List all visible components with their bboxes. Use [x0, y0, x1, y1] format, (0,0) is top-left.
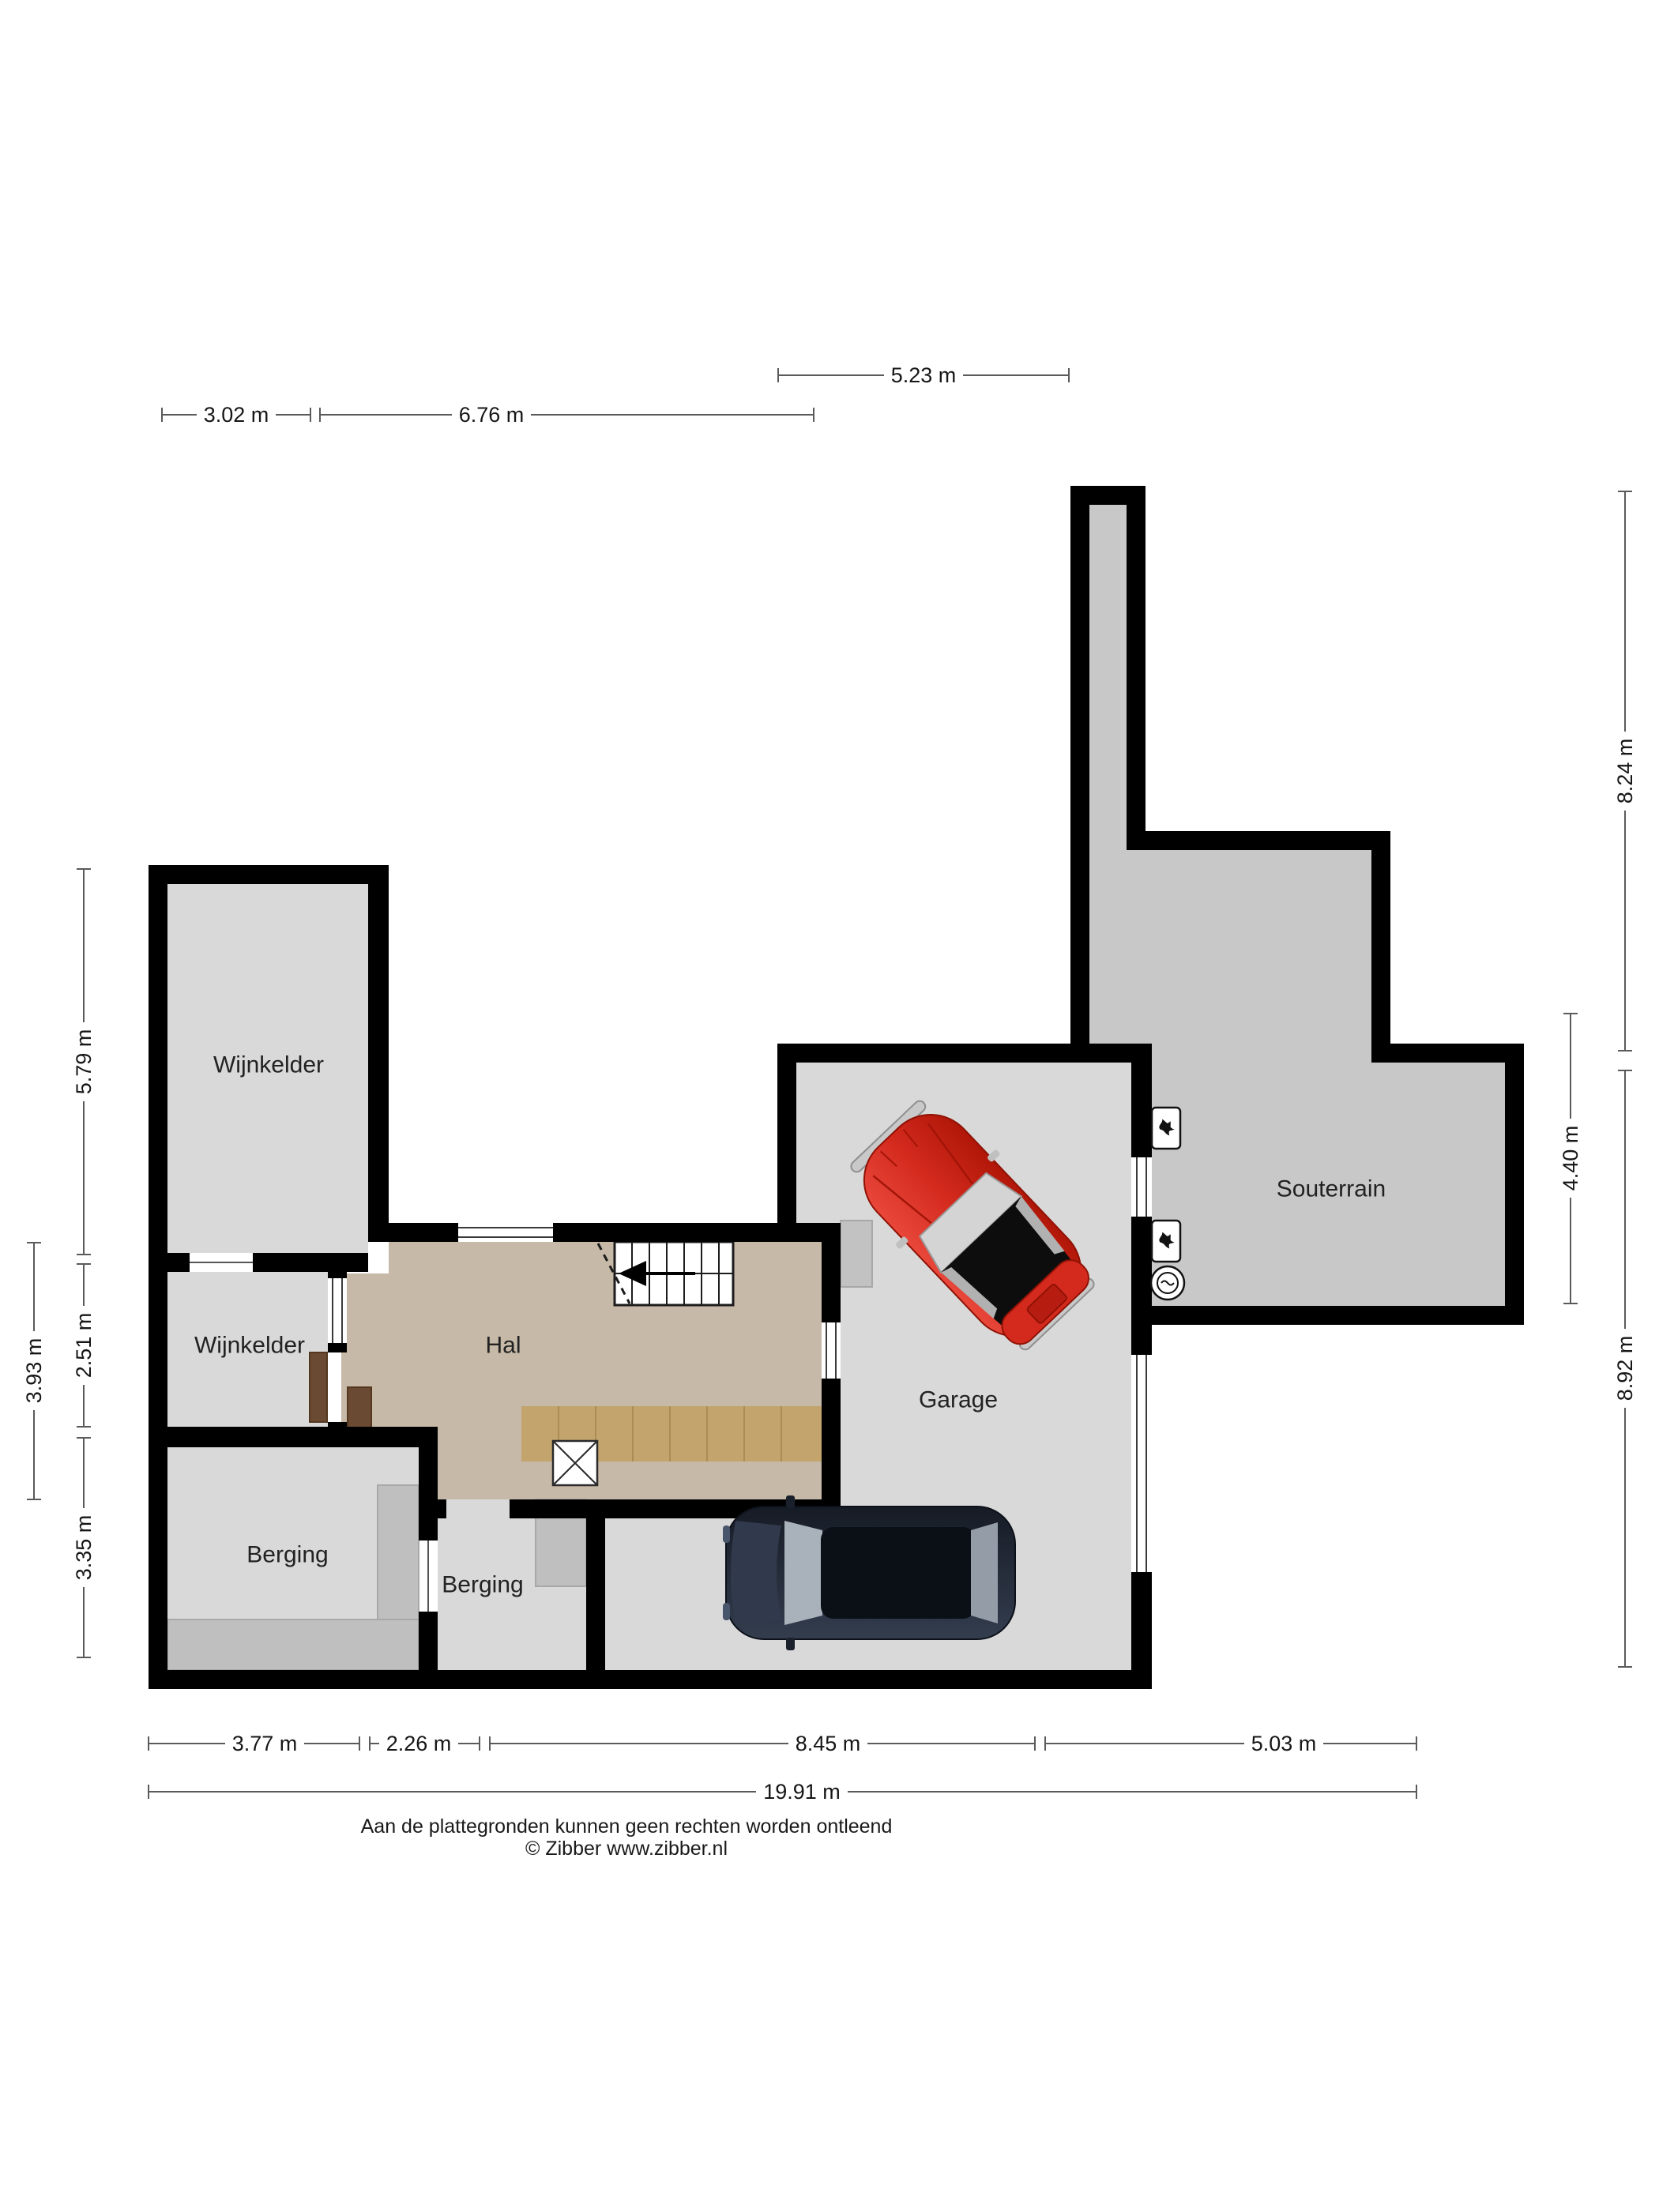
dim-left-berging: 3.35 m — [72, 1438, 96, 1657]
dim-bottom-berging-1: 3.77 m — [149, 1732, 359, 1755]
room-label-berging-2: Berging — [442, 1572, 523, 1598]
entry-strip-floor — [1089, 505, 1127, 850]
footer: Aan de plattegronden kunnen geen rechten… — [361, 1815, 893, 1860]
window-hal-garage — [822, 1322, 841, 1379]
svg-text:5.03 m: 5.03 m — [1251, 1732, 1317, 1755]
svg-text:3.35 m: 3.35 m — [72, 1515, 96, 1581]
svg-text:2.51 m: 2.51 m — [72, 1313, 96, 1379]
technical-block — [841, 1221, 872, 1287]
door-leaf — [310, 1352, 327, 1422]
dim-top-hal: 6.76 m — [320, 403, 814, 427]
dim-bottom-garage: 8.45 m — [490, 1732, 1035, 1755]
dim-left-wijnkelder-1: 5.79 m — [72, 869, 96, 1255]
room-label-souterrain: Souterrain — [1277, 1176, 1386, 1202]
dim-left-wijnkelder-2: 2.51 m — [72, 1264, 96, 1427]
dim-bottom-berging-2: 2.26 m — [370, 1732, 480, 1755]
boiler-flame-icon-2 — [1152, 1221, 1180, 1262]
dim-right-entry: 8.24 m — [1613, 491, 1637, 1051]
svg-text:8.24 m: 8.24 m — [1613, 739, 1637, 804]
svg-text:2.26 m: 2.26 m — [386, 1732, 452, 1755]
floor-plan: Wijnkelder Wijnkelder Hal Berging Bergin… — [0, 0, 1659, 2212]
window-wijnkelder-2 — [328, 1278, 347, 1343]
dim-right-souterrain: 4.40 m — [1559, 1014, 1582, 1303]
dim-right-garage: 8.92 m — [1613, 1070, 1637, 1667]
svg-text:5.23 m: 5.23 m — [891, 363, 957, 387]
svg-text:8.92 m: 8.92 m — [1613, 1336, 1637, 1401]
svg-text:6.76 m: 6.76 m — [459, 403, 525, 427]
footer-copyright: © Zibber www.zibber.nl — [525, 1838, 728, 1860]
dark-suv — [723, 1495, 1015, 1650]
room-label-wijnkelder-2: Wijnkelder — [194, 1333, 305, 1359]
svg-text:8.45 m: 8.45 m — [796, 1732, 861, 1755]
staircase — [598, 1242, 733, 1305]
room-label-hal: Hal — [485, 1333, 521, 1359]
dim-bottom-total: 19.91 m — [149, 1780, 1416, 1804]
svg-text:3.93 m: 3.93 m — [22, 1338, 46, 1404]
dim-bottom-souterrain: 5.03 m — [1045, 1732, 1416, 1755]
dim-top-wijnkelder: 3.02 m — [162, 403, 310, 427]
svg-text:3.02 m: 3.02 m — [204, 403, 269, 427]
shaft-cross-icon — [553, 1441, 597, 1485]
dim-top-garage: 5.23 m — [778, 363, 1069, 387]
footer-disclaimer: Aan de plattegronden kunnen geen rechten… — [361, 1815, 893, 1838]
room-label-wijnkelder-1: Wijnkelder — [213, 1052, 324, 1078]
round-meter-icon — [1151, 1266, 1184, 1300]
room-label-garage: Garage — [919, 1387, 998, 1413]
window-hal-top — [458, 1223, 553, 1242]
svg-text:3.77 m: 3.77 m — [232, 1732, 298, 1755]
boiler-flame-icon — [1152, 1108, 1180, 1149]
svg-text:5.79 m: 5.79 m — [72, 1029, 96, 1095]
storage-counter — [167, 1619, 419, 1670]
svg-text:19.91 m: 19.91 m — [763, 1780, 841, 1804]
dim-left-hal: 3.93 m — [22, 1243, 46, 1499]
svg-text:4.40 m: 4.40 m — [1559, 1126, 1582, 1191]
storage-block — [378, 1485, 419, 1619]
room-label-berging-1: Berging — [246, 1542, 328, 1568]
window-garage-souterrain — [1131, 1157, 1152, 1217]
garage-door-opening — [1131, 1355, 1152, 1572]
